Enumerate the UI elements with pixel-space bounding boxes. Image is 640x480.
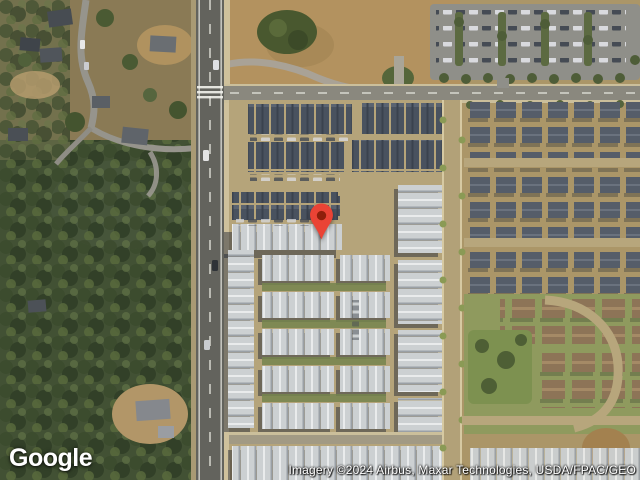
map-pin[interactable] bbox=[308, 202, 335, 242]
map-pin-icon bbox=[308, 202, 335, 242]
map-canvas[interactable]: Google Imagery ©2024 Airbus, Maxar Techn… bbox=[0, 0, 640, 480]
google-logo[interactable]: Google bbox=[9, 444, 92, 473]
attribution-text: Imagery ©2024 Airbus, Maxar Technologies… bbox=[288, 463, 636, 477]
